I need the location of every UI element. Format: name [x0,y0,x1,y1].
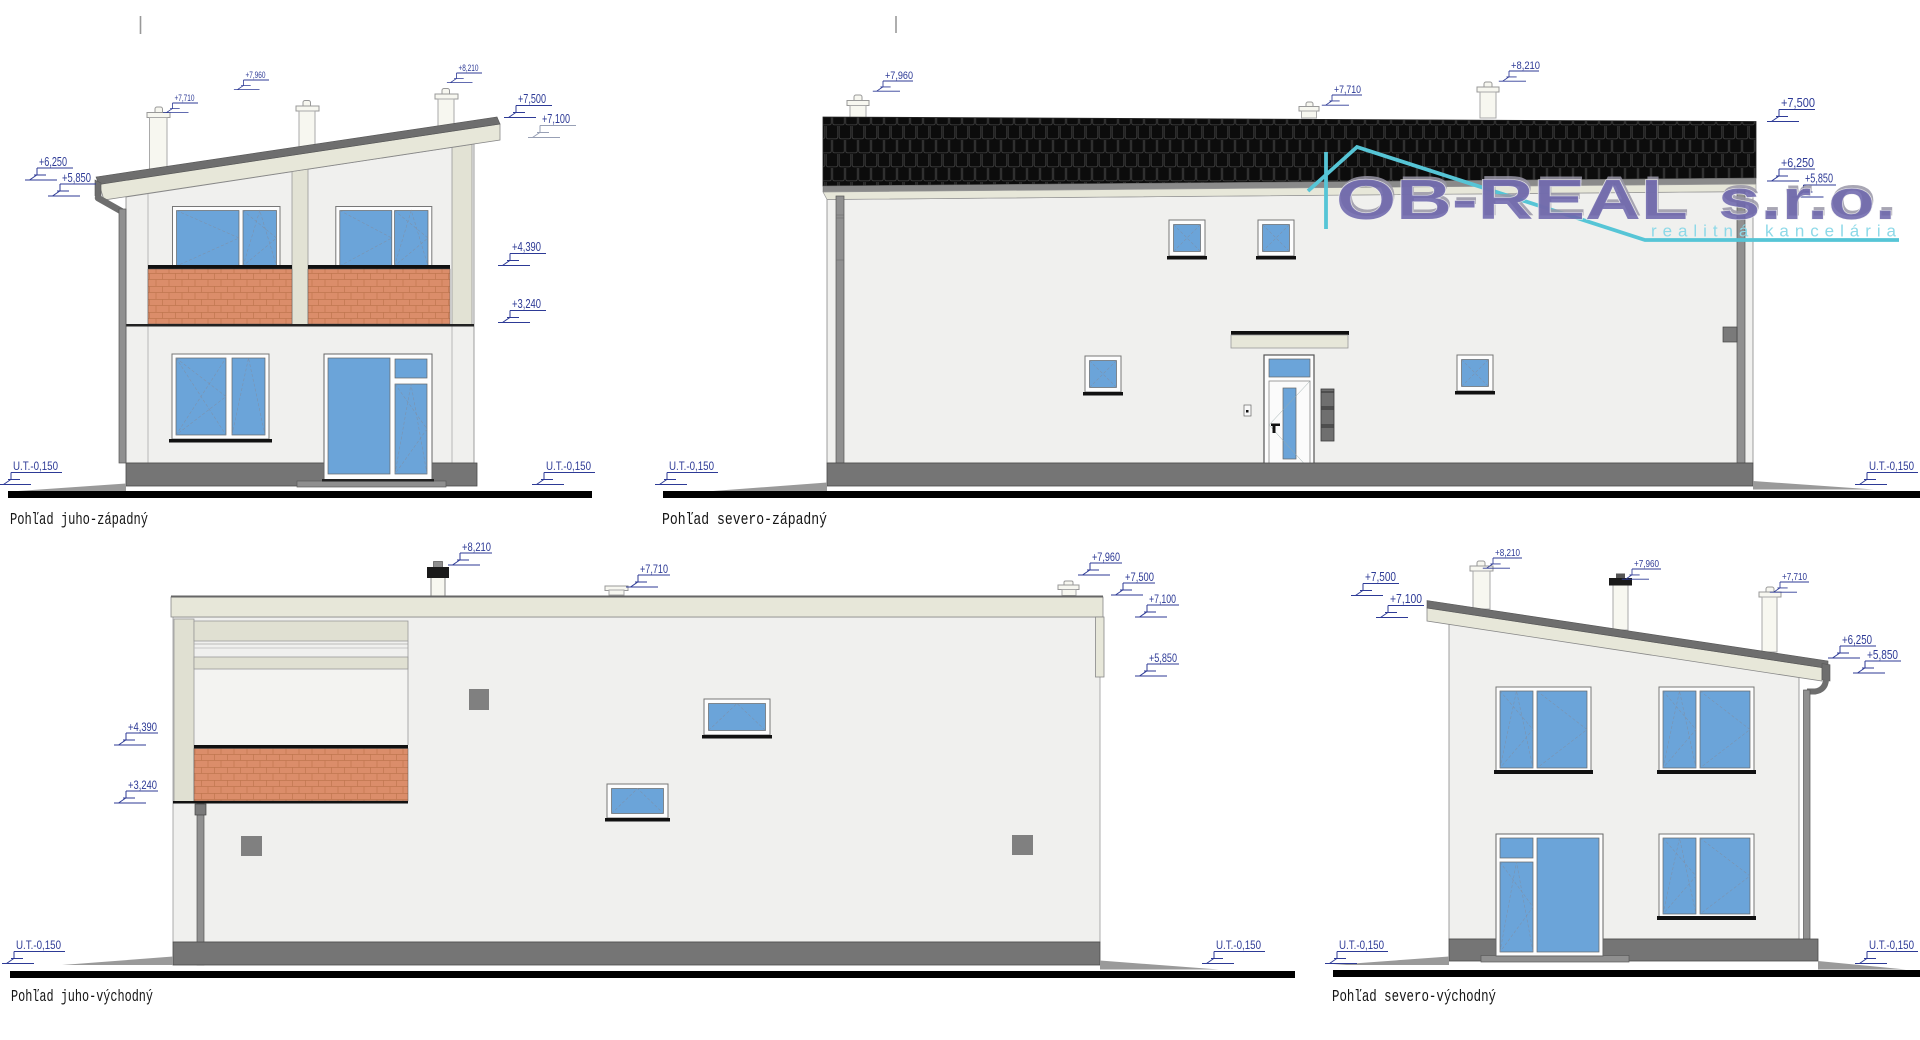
svg-text:+7,710: +7,710 [1334,84,1361,96]
svg-text:+7,710: +7,710 [1782,571,1807,583]
svg-text:Pohľad juho-východný: Pohľad juho-východný [11,987,153,1006]
svg-text:+4,390: +4,390 [128,720,157,734]
svg-text:+8,210: +8,210 [462,540,491,554]
svg-text:+7,710: +7,710 [175,93,195,104]
svg-text:U.T.-0,150: U.T.-0,150 [13,461,58,473]
svg-text:+4,390: +4,390 [512,239,541,254]
svg-text:U.T.-0,150: U.T.-0,150 [546,461,591,473]
svg-text:Pohľad juho-západný: Pohľad juho-západný [10,510,148,529]
svg-text:+7,500: +7,500 [1365,569,1396,584]
svg-text:+6,250: +6,250 [1842,632,1872,647]
svg-text:+7,500: +7,500 [1781,95,1815,110]
svg-text:+5,850: +5,850 [1867,647,1898,662]
svg-text:+5,850: +5,850 [62,170,91,185]
svg-text:+7,100: +7,100 [542,111,570,126]
svg-text:+5,850: +5,850 [1149,651,1177,665]
svg-text:Pohľad severo-západný: Pohľad severo-západný [662,510,827,529]
svg-text:U.T.-0,150: U.T.-0,150 [1869,461,1914,473]
svg-text:+7,960: +7,960 [885,70,913,82]
svg-text:U.T.-0,150: U.T.-0,150 [16,940,61,952]
svg-text:+7,710: +7,710 [640,562,668,576]
svg-text:+7,100: +7,100 [1149,592,1176,606]
svg-text:+7,500: +7,500 [1125,570,1154,584]
svg-text:Pohľad severo-východný: Pohľad severo-východný [1332,987,1496,1006]
svg-text:U.T.-0,150: U.T.-0,150 [1339,940,1384,952]
svg-text:+8,210: +8,210 [459,63,479,74]
svg-text:+7,960: +7,960 [1092,550,1120,564]
svg-text:+8,210: +8,210 [1511,60,1540,72]
svg-text:+7,960: +7,960 [246,70,266,81]
svg-text:+8,210: +8,210 [1495,547,1520,559]
svg-text:+6,250: +6,250 [39,154,67,169]
svg-text:+3,240: +3,240 [512,296,541,311]
svg-text:+7,100: +7,100 [1390,591,1422,606]
svg-text:+7,960: +7,960 [1634,558,1659,570]
svg-text:U.T.-0,150: U.T.-0,150 [1216,940,1261,952]
svg-text:U.T.-0,150: U.T.-0,150 [669,461,714,473]
svg-text:+3,240: +3,240 [128,778,157,792]
svg-text:+7,500: +7,500 [518,91,546,106]
svg-text:OB-REAL: OB-REAL [1336,168,1688,232]
svg-text:U.T.-0,150: U.T.-0,150 [1869,940,1914,952]
